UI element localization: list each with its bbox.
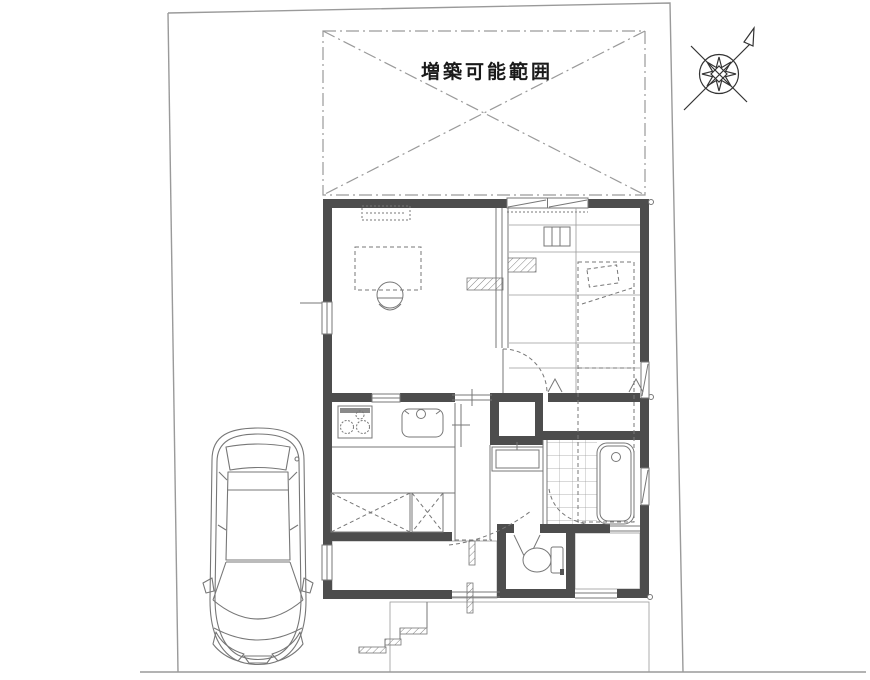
burner xyxy=(357,421,370,434)
bath-yard-door xyxy=(610,526,640,531)
bedroom-closet xyxy=(544,227,570,246)
car-body xyxy=(210,428,306,665)
washroom-bath-partition xyxy=(543,440,547,524)
wall-post xyxy=(648,595,653,600)
toilet-bowl xyxy=(523,548,551,572)
door-stop-marks xyxy=(548,379,643,392)
utility-yard-tiles xyxy=(575,533,640,589)
pillow xyxy=(587,265,619,287)
dining-table xyxy=(355,247,421,290)
bedroom-door-arc xyxy=(503,349,547,393)
car-hood-line xyxy=(214,628,302,640)
burner xyxy=(341,421,354,434)
bathroom-tiles xyxy=(547,440,597,524)
site-plan: 増築可能範囲 xyxy=(0,0,870,680)
tub-faucet xyxy=(612,453,621,462)
bathtub xyxy=(597,443,634,524)
genkan-step-hatch xyxy=(467,583,473,613)
wall-post xyxy=(649,200,654,205)
interior-partitions xyxy=(332,208,547,541)
north-compass-icon xyxy=(684,28,754,110)
floor-lines xyxy=(509,208,640,393)
toilet-flush xyxy=(560,569,564,575)
step-hatch xyxy=(359,647,386,653)
blanket-fold xyxy=(582,288,632,304)
kitchen xyxy=(338,406,443,438)
approach-tiles xyxy=(390,602,649,672)
floor-plan-drawing: 増築可能範囲 xyxy=(0,0,870,680)
car-roof xyxy=(226,472,290,560)
extension-area: 増築可能範囲 xyxy=(323,31,645,195)
threshold-right xyxy=(575,593,617,598)
step-hatch xyxy=(400,628,427,634)
car-rear-window xyxy=(226,444,290,470)
car-mirror-left xyxy=(203,578,214,593)
car-mirror-right xyxy=(302,578,313,593)
closets xyxy=(331,493,443,532)
north-arrow-head xyxy=(744,28,754,46)
car-windshield xyxy=(213,562,303,619)
extension-area-label: 増築可能範囲 xyxy=(421,60,553,83)
sliding-door-hall xyxy=(452,389,492,406)
car-headlights xyxy=(213,632,303,661)
genkan-step-hatch xyxy=(469,541,475,565)
washbasin xyxy=(492,447,543,471)
faucet xyxy=(417,410,426,419)
entrance-door xyxy=(452,592,500,597)
chair xyxy=(377,282,403,308)
living-room xyxy=(355,206,421,310)
car-top-view xyxy=(203,428,313,665)
new-wall-hatch xyxy=(467,278,503,290)
new-wall-hatch xyxy=(508,258,536,272)
step-hatch xyxy=(385,639,401,645)
